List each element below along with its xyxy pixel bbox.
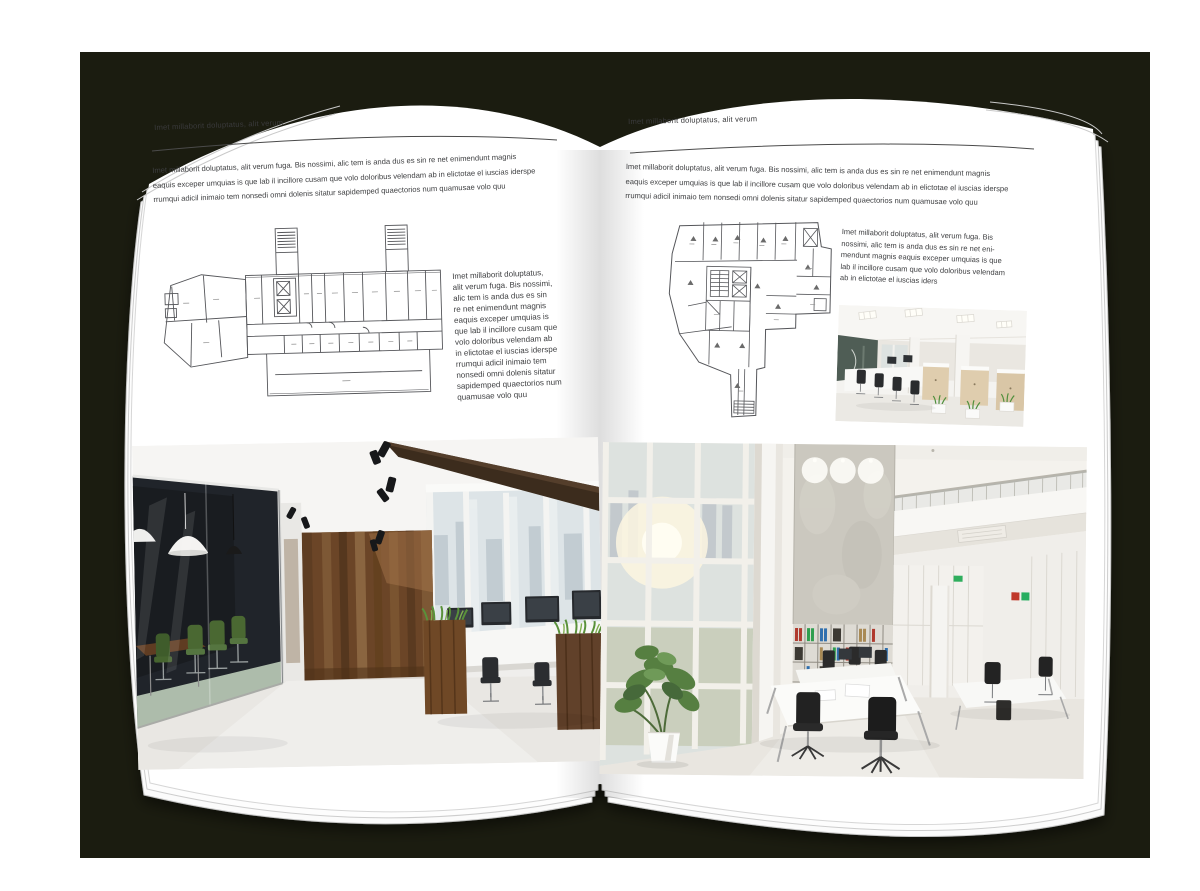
spread-content: Imet millaborit doluptatus, alit verum I…: [0, 0, 1200, 891]
left-office-photo-figure: [132, 437, 604, 770]
right-intro-paragraph: Imet millaborit doluptatus, alit verum f…: [625, 160, 1066, 212]
right-small-office-photo-image: [835, 305, 1027, 427]
right-office-photo-figure: [600, 442, 1087, 779]
right-floor-plan-figure: [642, 213, 844, 429]
left-office-photo-image: [132, 437, 604, 770]
left-floor-plan-figure: [156, 218, 453, 412]
right-running-head: Imet millaborit doluptatus, alit verum: [628, 114, 757, 126]
wall-downlights: [802, 457, 884, 484]
left-running-head: Imet millaborit doluptatus, alit verum: [154, 118, 283, 132]
right-small-photo-figure: [835, 305, 1027, 427]
right-side-paragraph: Imet millaborit doluptatus, alit verum f…: [840, 226, 1046, 292]
left-side-paragraph: Imet millaborit doluptatus, alit verum f…: [452, 265, 589, 402]
book-mockup-scene: Imet millaborit doluptatus, alit verum I…: [0, 0, 1200, 891]
left-intro-paragraph: Imet millaborit doluptatus, alit verum f…: [152, 147, 593, 208]
left-floor-plan-image: [156, 218, 453, 412]
right-office-photo-image: [600, 442, 1087, 779]
right-floor-plan-image: [642, 213, 844, 429]
